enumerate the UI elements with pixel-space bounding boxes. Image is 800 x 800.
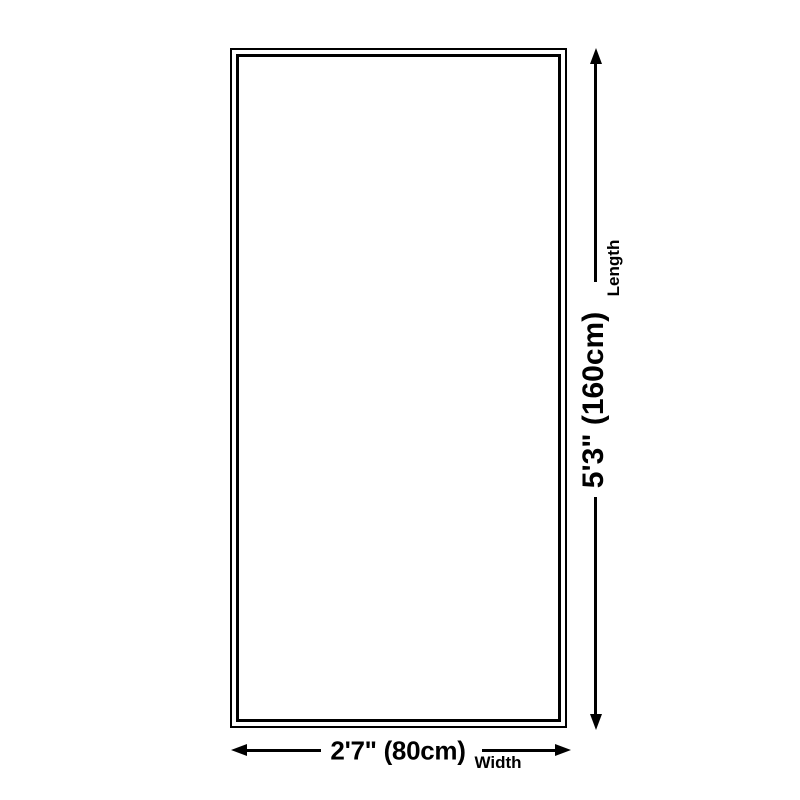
- dimension-diagram: Length 5'3" (160cm) 2'7" (80cm) Width: [0, 0, 800, 800]
- length-dimension-line-bottom: [594, 497, 597, 716]
- arrow-right-icon: [555, 744, 571, 756]
- rug-outline-outer: [230, 48, 567, 728]
- width-value-label: 2'7" (80cm): [330, 736, 465, 767]
- arrow-left-icon: [231, 744, 247, 756]
- rug-outline-inner: [236, 54, 561, 722]
- width-dimension-line-left: [246, 749, 321, 752]
- arrow-down-icon: [590, 714, 602, 730]
- length-dimension-line-top: [594, 60, 597, 282]
- width-dimension-line-right: [482, 749, 556, 752]
- length-axis-label: Length: [604, 240, 624, 297]
- length-value-label: 5'3" (160cm): [577, 312, 611, 488]
- width-axis-label: Width: [474, 753, 521, 773]
